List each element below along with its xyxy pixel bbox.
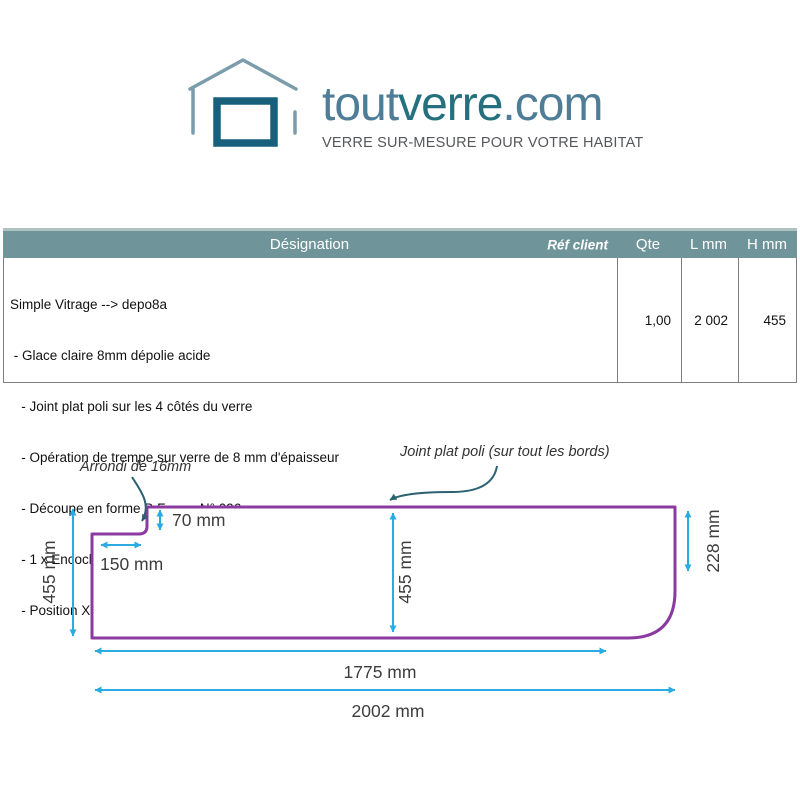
header-qty: Qte <box>616 231 680 258</box>
cell-qty: 1,00 <box>617 258 681 382</box>
brand-com: .com <box>502 78 602 131</box>
header-l-mm: L mm <box>680 231 737 258</box>
edge-finish-callout-arrow-icon <box>390 466 497 500</box>
left-height-dimension-label: 455 mm <box>39 540 59 603</box>
header-ref-client: Réf client <box>547 237 608 252</box>
header-h-mm: H mm <box>737 231 797 258</box>
brand-tout: tout <box>322 78 398 131</box>
house-logo-icon <box>186 56 302 152</box>
brand-tagline: VERRE SUR-MESURE POUR VOTRE HABITAT <box>322 135 652 151</box>
logo: toutverre.com VERRE SUR-MESURE POUR VOTR… <box>322 80 652 151</box>
cell-l-mm: 2 002 <box>681 258 738 382</box>
brand-name: toutverre.com <box>322 80 652 130</box>
edge-finish-callout-label: Joint plat poli (sur tout les bords) <box>399 444 610 460</box>
notch-height-dimension-label: 70 mm <box>172 510 225 530</box>
header-designation: Désignation Réf client <box>3 231 616 258</box>
designation-line: - Joint plat poli sur les 4 côtés du ver… <box>10 398 611 415</box>
center-height-dimension-label: 455 mm <box>395 540 415 603</box>
cell-h-mm: 455 <box>738 258 796 382</box>
designation-line: Simple Vitrage --> depo8a <box>10 296 611 313</box>
table-header-row: Désignation Réf client Qte L mm H mm <box>3 228 797 258</box>
right-height-dimension-label: 228 mm <box>703 509 723 572</box>
house-roof <box>190 60 296 89</box>
bottom-straight-dimension-label: 1775 mm <box>344 662 417 682</box>
order-table: Désignation Réf client Qte L mm H mm Sim… <box>3 228 797 383</box>
corner-radius-callout-arrow-icon <box>132 477 146 521</box>
total-width-dimension-label: 2002 mm <box>352 701 425 721</box>
table-row: Simple Vitrage --> depo8a - Glace claire… <box>3 258 797 383</box>
window-icon <box>217 101 274 143</box>
corner-radius-callout-label: Arrondi de 16mm <box>79 459 191 475</box>
designation-line: - Glace claire 8mm dépolie acide <box>10 347 611 364</box>
glass-shape-diagram: Arrondi de 16mm Joint plat poli (sur tou… <box>0 420 800 800</box>
notch-width-dimension-label: 150 mm <box>100 554 163 574</box>
header-designation-label: Désignation <box>270 236 349 253</box>
brand-verre: verre <box>398 78 502 131</box>
document-page: toutverre.com VERRE SUR-MESURE POUR VOTR… <box>0 0 800 800</box>
cell-designation: Simple Vitrage --> depo8a - Glace claire… <box>4 258 617 382</box>
